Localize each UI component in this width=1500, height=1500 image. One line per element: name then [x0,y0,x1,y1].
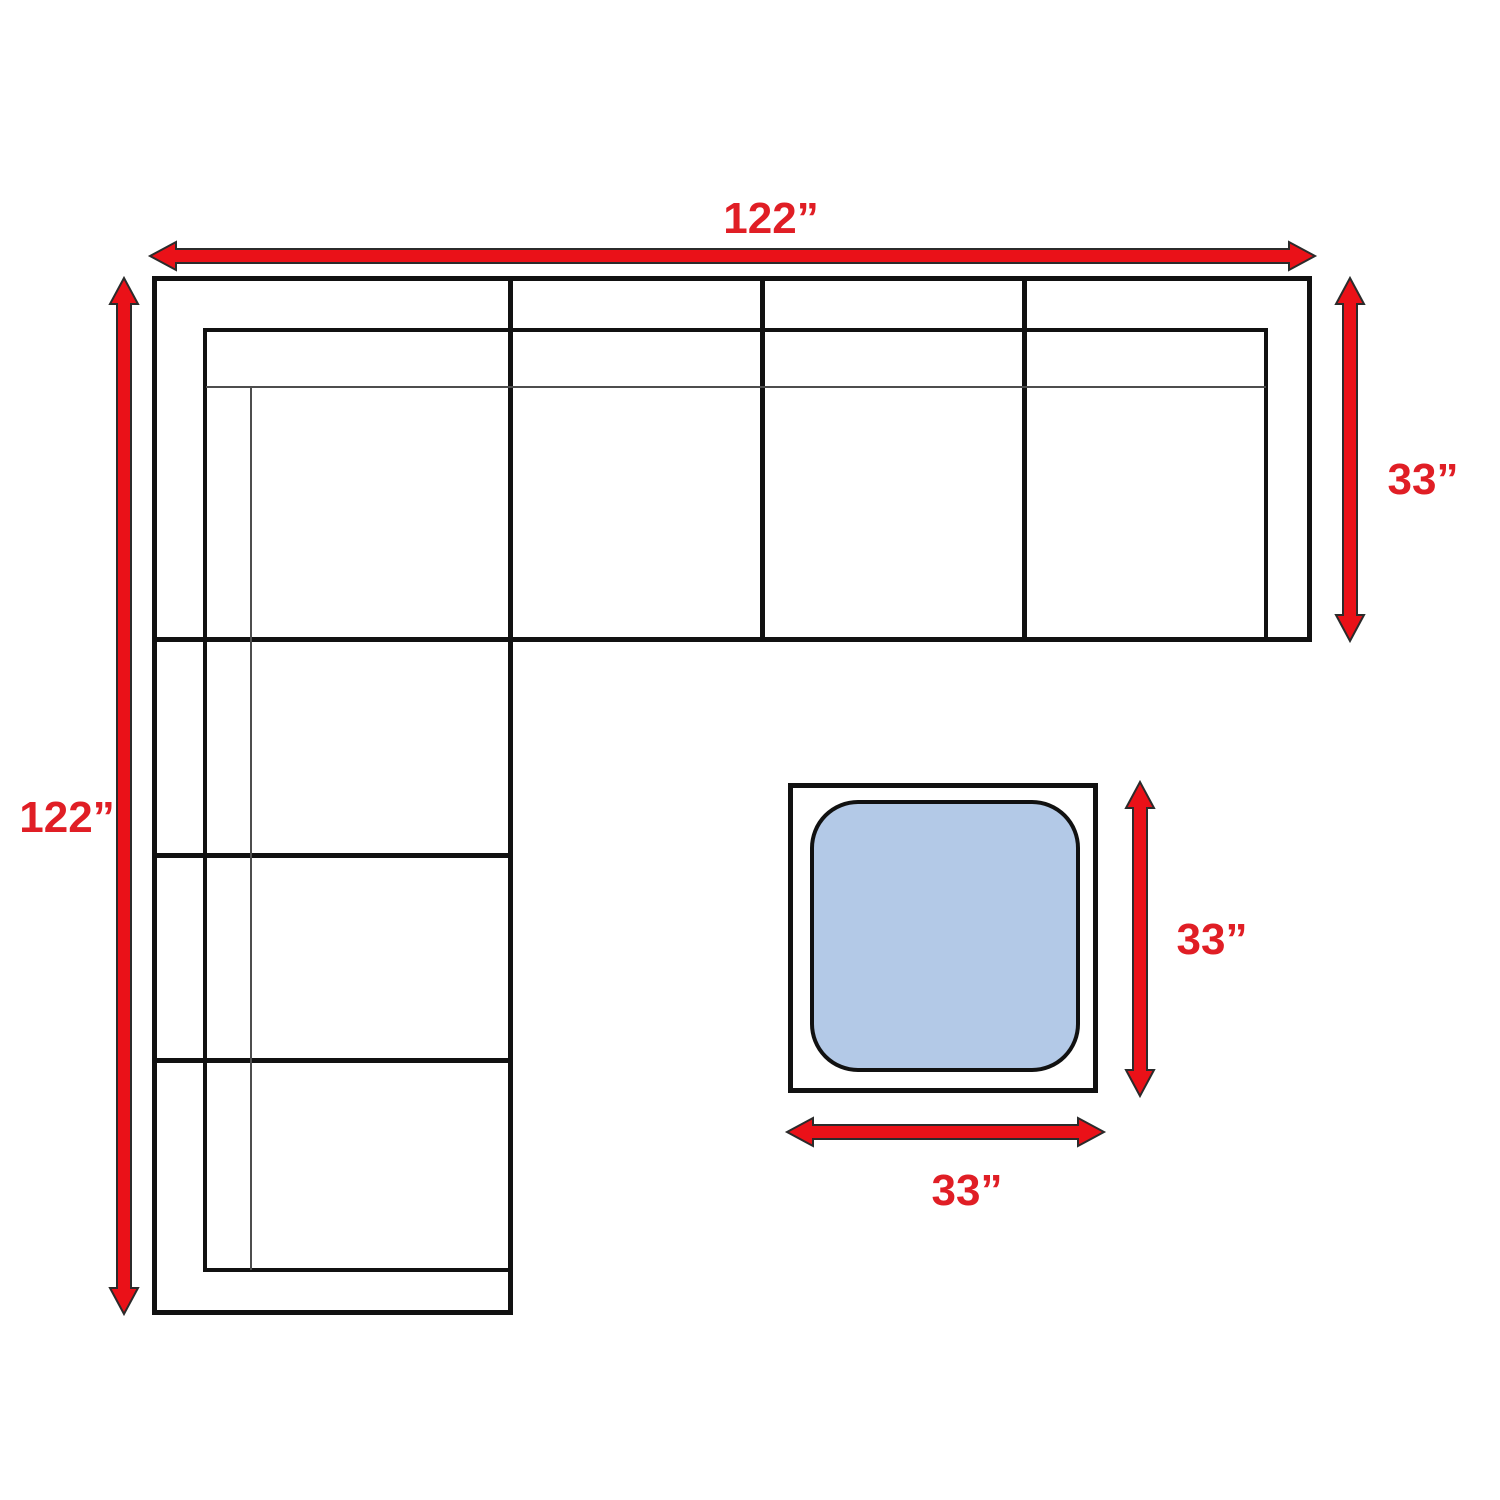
dimension-label-arm-depth: 33” [1388,455,1459,505]
dimension-label-ottoman-width: 33” [932,1166,1003,1216]
seat-cushion-line-horizontal [206,386,1266,388]
sofa-left-arm-right-edge [508,276,513,1315]
backrest-inner-left-edge [203,328,207,1272]
seat-cushion-line-vertical [250,387,252,1270]
backrest-inner-top-edge [203,328,1268,332]
dimension-arrow-ottoman-height [1126,782,1154,1096]
ottoman-cushion [810,800,1080,1072]
sofa-top-arm-bottom-edge [152,637,1312,642]
armrest-inner-right-edge [1264,328,1268,642]
dimension-label-ottoman-height: 33” [1177,915,1248,965]
sofa-outer-left-edge [152,276,157,1315]
sofa-outer-right-edge [1307,276,1312,642]
dimension-arrow-arm-depth [1336,278,1364,641]
dimension-arrow-ottoman-width [787,1118,1104,1146]
sofa-outer-top-edge [152,276,1312,281]
dimension-label-sofa-depth: 122” [19,793,114,843]
sectional-dimension-diagram: 122” 122” 33” 33” 33” [0,0,1500,1500]
dimension-label-sofa-width: 122” [723,194,818,244]
sofa-left-arm-bottom-edge [152,1310,513,1315]
dimension-arrow-sofa-width [150,242,1315,270]
